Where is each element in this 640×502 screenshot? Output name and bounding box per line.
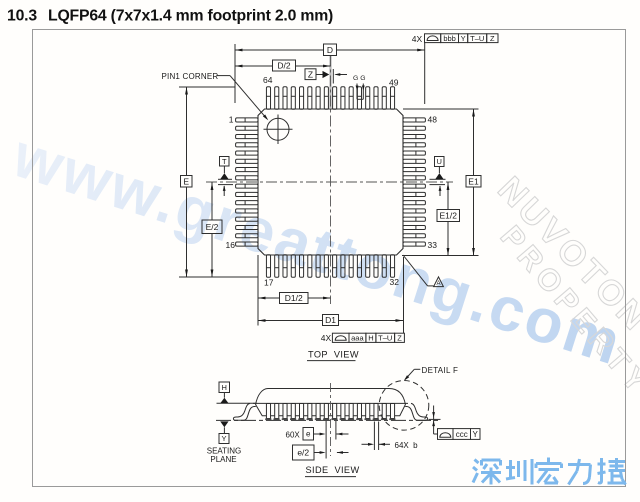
svg-text:D: D xyxy=(327,45,333,55)
svg-text:TOP VIEW: TOP VIEW xyxy=(308,350,359,360)
svg-text:Z: Z xyxy=(308,69,313,79)
svg-text:H: H xyxy=(368,334,373,343)
svg-text:D1: D1 xyxy=(325,315,336,325)
svg-text:4X: 4X xyxy=(412,34,423,44)
svg-text:e: e xyxy=(306,430,311,439)
svg-text:D1/2: D1/2 xyxy=(285,293,303,303)
svg-text:aaa: aaa xyxy=(351,334,364,343)
svg-text:T–U: T–U xyxy=(470,34,484,43)
svg-text:e/2: e/2 xyxy=(297,448,309,458)
svg-text:1: 1 xyxy=(229,114,234,124)
svg-text:60X: 60X xyxy=(286,431,301,440)
svg-text:PLANE: PLANE xyxy=(210,455,236,464)
svg-text:Z: Z xyxy=(397,334,402,343)
svg-text:T: T xyxy=(222,157,227,166)
svg-text:17: 17 xyxy=(264,278,274,288)
svg-text:48: 48 xyxy=(428,114,438,124)
svg-text:D/2: D/2 xyxy=(277,61,291,71)
svg-text:49: 49 xyxy=(389,78,399,88)
svg-text:64X b: 64X b xyxy=(395,441,419,450)
svg-text:PIN1 CORNER: PIN1 CORNER xyxy=(162,72,219,81)
svg-text:H: H xyxy=(222,383,227,392)
svg-text:E/2: E/2 xyxy=(206,222,219,232)
svg-text:E1/2: E1/2 xyxy=(440,211,458,221)
svg-text:32: 32 xyxy=(390,277,400,287)
svg-text:Y: Y xyxy=(221,434,226,443)
svg-text:ccc: ccc xyxy=(456,430,468,439)
svg-text:G: G xyxy=(360,75,365,82)
svg-text:G: G xyxy=(353,75,358,82)
svg-text:Z: Z xyxy=(490,34,495,43)
svg-text:Y: Y xyxy=(473,430,479,439)
svg-text:4X: 4X xyxy=(321,333,332,343)
svg-text:E: E xyxy=(183,176,189,186)
svg-text:bbb: bbb xyxy=(443,34,456,43)
svg-text:SIDE VIEW: SIDE VIEW xyxy=(306,465,360,475)
svg-text:16: 16 xyxy=(226,240,236,250)
svg-text:Y: Y xyxy=(461,34,466,43)
svg-text:T–U: T–U xyxy=(378,334,392,343)
svg-text:10.3: 10.3 xyxy=(7,7,37,24)
svg-text:A: A xyxy=(436,281,440,287)
svg-text:DETAIL F: DETAIL F xyxy=(422,366,459,375)
svg-text:E1: E1 xyxy=(468,176,479,186)
svg-text:U: U xyxy=(437,157,442,166)
svg-text:33: 33 xyxy=(428,240,438,250)
svg-text:LQFP64 (7x7x1.4 mm footprint 2: LQFP64 (7x7x1.4 mm footprint 2.0 mm) xyxy=(48,7,333,24)
svg-text:64: 64 xyxy=(263,75,273,85)
